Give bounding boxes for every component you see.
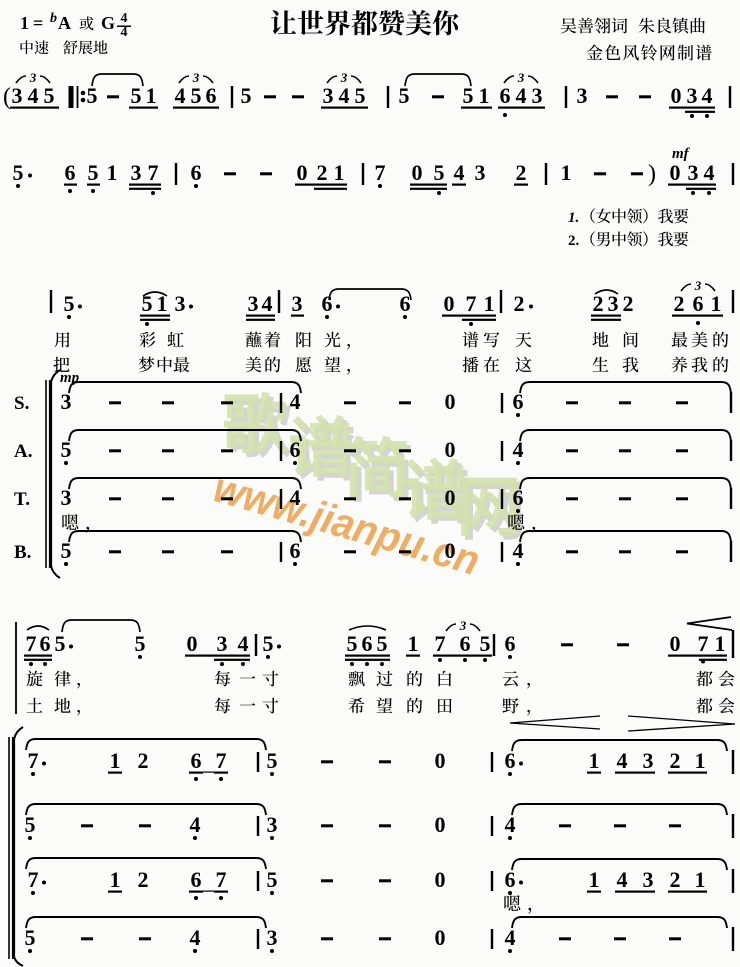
svg-text:3: 3 bbox=[267, 925, 278, 950]
svg-text:A: A bbox=[58, 13, 71, 33]
svg-text:6: 6 bbox=[513, 389, 524, 414]
svg-text:6: 6 bbox=[40, 631, 51, 656]
svg-text:6: 6 bbox=[505, 867, 516, 892]
svg-text:0: 0 bbox=[671, 83, 682, 108]
svg-text:7: 7 bbox=[466, 291, 477, 316]
svg-text:6: 6 bbox=[191, 160, 202, 185]
svg-text:5: 5 bbox=[434, 160, 445, 185]
svg-text:3: 3 bbox=[217, 631, 228, 656]
svg-text:6: 6 bbox=[505, 748, 516, 773]
svg-text:1: 1 bbox=[589, 867, 600, 892]
svg-text:1: 1 bbox=[715, 631, 726, 656]
svg-text:1: 1 bbox=[711, 291, 722, 316]
svg-text:1: 1 bbox=[695, 748, 706, 773]
svg-text:3: 3 bbox=[688, 160, 699, 185]
svg-text:6: 6 bbox=[693, 291, 704, 316]
svg-text:4: 4 bbox=[454, 160, 465, 185]
svg-text:0: 0 bbox=[445, 485, 456, 510]
svg-text:3: 3 bbox=[267, 812, 278, 837]
svg-text:5: 5 bbox=[88, 160, 99, 185]
svg-text:4: 4 bbox=[513, 437, 524, 462]
svg-text:6: 6 bbox=[400, 291, 411, 316]
svg-text:6: 6 bbox=[65, 160, 76, 185]
svg-text:3: 3 bbox=[475, 160, 486, 185]
svg-text:5: 5 bbox=[267, 748, 278, 773]
svg-text:2: 2 bbox=[138, 867, 149, 892]
svg-text:5: 5 bbox=[355, 83, 366, 108]
svg-text:5: 5 bbox=[241, 83, 252, 108]
svg-text:5: 5 bbox=[61, 437, 72, 462]
svg-text:3: 3 bbox=[577, 83, 588, 108]
svg-text:7: 7 bbox=[28, 867, 39, 892]
svg-text:7: 7 bbox=[375, 160, 386, 185]
svg-text:5: 5 bbox=[131, 83, 142, 108]
svg-text:5: 5 bbox=[64, 291, 75, 316]
svg-text:7: 7 bbox=[435, 631, 446, 656]
svg-text:2: 2 bbox=[516, 160, 527, 185]
svg-text:4: 4 bbox=[617, 867, 628, 892]
svg-text:G: G bbox=[101, 13, 115, 33]
svg-text:1: 1 bbox=[146, 83, 157, 108]
svg-text:1: 1 bbox=[484, 291, 495, 316]
svg-text:1: 1 bbox=[589, 748, 600, 773]
svg-text:4: 4 bbox=[190, 812, 201, 837]
svg-text:5: 5 bbox=[55, 631, 66, 656]
svg-text:T.: T. bbox=[14, 489, 30, 510]
svg-text:2.: 2. bbox=[568, 233, 580, 249]
svg-text:4: 4 bbox=[513, 538, 524, 563]
svg-text:5: 5 bbox=[347, 631, 358, 656]
svg-text:2: 2 bbox=[674, 291, 685, 316]
svg-text:5: 5 bbox=[263, 631, 274, 656]
svg-text:3: 3 bbox=[459, 618, 467, 633]
svg-text:3: 3 bbox=[12, 83, 23, 108]
svg-text:1: 1 bbox=[20, 13, 29, 33]
svg-text:1: 1 bbox=[479, 83, 490, 108]
svg-text:4: 4 bbox=[121, 25, 128, 40]
svg-text:3: 3 bbox=[192, 70, 200, 85]
svg-text:1: 1 bbox=[561, 160, 572, 185]
svg-text:6: 6 bbox=[206, 83, 217, 108]
svg-text:3: 3 bbox=[694, 278, 702, 293]
svg-text:0: 0 bbox=[670, 631, 681, 656]
svg-text:4: 4 bbox=[617, 748, 628, 773]
svg-text:2: 2 bbox=[514, 291, 525, 316]
svg-text:5: 5 bbox=[142, 291, 153, 316]
svg-text:4: 4 bbox=[704, 160, 715, 185]
svg-text:4: 4 bbox=[238, 631, 249, 656]
svg-text:0: 0 bbox=[445, 437, 456, 462]
svg-text:7: 7 bbox=[28, 748, 39, 773]
svg-text:4: 4 bbox=[175, 83, 186, 108]
svg-text:0: 0 bbox=[444, 291, 455, 316]
svg-text:3: 3 bbox=[248, 291, 259, 316]
svg-text:2: 2 bbox=[670, 748, 681, 773]
svg-text:2: 2 bbox=[670, 867, 681, 892]
svg-text:5: 5 bbox=[25, 925, 36, 950]
svg-text:6: 6 bbox=[290, 538, 301, 563]
svg-text:3: 3 bbox=[517, 70, 525, 85]
svg-text:4: 4 bbox=[290, 485, 301, 510]
svg-text:5: 5 bbox=[61, 538, 72, 563]
svg-text:1: 1 bbox=[110, 867, 121, 892]
svg-text:S.: S. bbox=[14, 393, 29, 414]
svg-text:4: 4 bbox=[290, 389, 301, 414]
svg-text:4: 4 bbox=[505, 925, 516, 950]
svg-text:6: 6 bbox=[290, 437, 301, 462]
svg-text:3: 3 bbox=[340, 70, 348, 85]
svg-text:1: 1 bbox=[107, 160, 118, 185]
svg-text:7: 7 bbox=[148, 160, 159, 185]
svg-text:0: 0 bbox=[435, 812, 446, 837]
svg-text:0: 0 bbox=[187, 631, 198, 656]
svg-text:6: 6 bbox=[505, 631, 516, 656]
svg-text:2: 2 bbox=[317, 160, 328, 185]
svg-text:3: 3 bbox=[131, 160, 142, 185]
svg-text:4: 4 bbox=[121, 11, 128, 26]
svg-text:): ) bbox=[648, 161, 656, 187]
svg-text:6: 6 bbox=[191, 748, 202, 773]
svg-text:3: 3 bbox=[687, 83, 698, 108]
svg-text:0: 0 bbox=[435, 748, 446, 773]
svg-text:4: 4 bbox=[702, 83, 713, 108]
svg-text:5: 5 bbox=[480, 631, 491, 656]
svg-text:A.: A. bbox=[14, 441, 32, 462]
svg-text:=: = bbox=[33, 13, 43, 33]
svg-text:7: 7 bbox=[216, 867, 227, 892]
svg-text:6: 6 bbox=[513, 485, 524, 510]
svg-text:5: 5 bbox=[267, 867, 278, 892]
svg-text:4: 4 bbox=[28, 83, 39, 108]
svg-text:0: 0 bbox=[670, 160, 681, 185]
svg-text:3: 3 bbox=[61, 389, 72, 414]
svg-text:3: 3 bbox=[643, 748, 654, 773]
svg-text:3: 3 bbox=[608, 291, 619, 316]
svg-text:6: 6 bbox=[191, 867, 202, 892]
svg-text:5: 5 bbox=[25, 812, 36, 837]
svg-text:(: ( bbox=[3, 84, 11, 110]
svg-text:3: 3 bbox=[532, 83, 543, 108]
svg-text:0: 0 bbox=[445, 389, 456, 414]
svg-text:7: 7 bbox=[698, 631, 709, 656]
svg-text:5: 5 bbox=[13, 160, 24, 185]
svg-text:5: 5 bbox=[399, 83, 410, 108]
svg-text:3: 3 bbox=[175, 291, 186, 316]
svg-text:1.: 1. bbox=[568, 210, 579, 226]
svg-text:2: 2 bbox=[623, 291, 634, 316]
svg-text:2: 2 bbox=[593, 291, 604, 316]
svg-text:4: 4 bbox=[505, 812, 516, 837]
svg-text:0: 0 bbox=[445, 538, 456, 563]
svg-text:1: 1 bbox=[695, 867, 706, 892]
svg-text:0: 0 bbox=[297, 160, 308, 185]
svg-text:5: 5 bbox=[135, 631, 146, 656]
svg-text:5: 5 bbox=[463, 83, 474, 108]
svg-text:0: 0 bbox=[412, 160, 423, 185]
svg-text:5: 5 bbox=[191, 83, 202, 108]
svg-text:1: 1 bbox=[408, 631, 419, 656]
svg-text:mf: mf bbox=[672, 146, 691, 162]
svg-text:4: 4 bbox=[262, 291, 273, 316]
svg-text:3: 3 bbox=[61, 485, 72, 510]
svg-text:4: 4 bbox=[516, 83, 527, 108]
svg-text:b: b bbox=[50, 11, 57, 26]
svg-text:5: 5 bbox=[87, 83, 98, 108]
svg-text:3: 3 bbox=[643, 867, 654, 892]
svg-text:4: 4 bbox=[339, 83, 350, 108]
svg-text:5: 5 bbox=[44, 83, 55, 108]
svg-text:0: 0 bbox=[435, 867, 446, 892]
svg-text:6: 6 bbox=[500, 83, 511, 108]
svg-text:1: 1 bbox=[334, 160, 345, 185]
svg-text:6: 6 bbox=[362, 631, 373, 656]
svg-text:3: 3 bbox=[29, 70, 37, 85]
svg-text:7: 7 bbox=[26, 631, 37, 656]
svg-text:6: 6 bbox=[460, 631, 471, 656]
svg-text:4: 4 bbox=[190, 925, 201, 950]
svg-text:1: 1 bbox=[110, 748, 121, 773]
svg-text:mp: mp bbox=[60, 370, 80, 386]
svg-text:3: 3 bbox=[292, 291, 303, 316]
svg-text:B.: B. bbox=[14, 542, 31, 563]
svg-text:7: 7 bbox=[216, 748, 227, 773]
svg-text:2: 2 bbox=[138, 748, 149, 773]
svg-text:3: 3 bbox=[323, 83, 334, 108]
svg-text:5: 5 bbox=[377, 631, 388, 656]
svg-text:0: 0 bbox=[435, 925, 446, 950]
